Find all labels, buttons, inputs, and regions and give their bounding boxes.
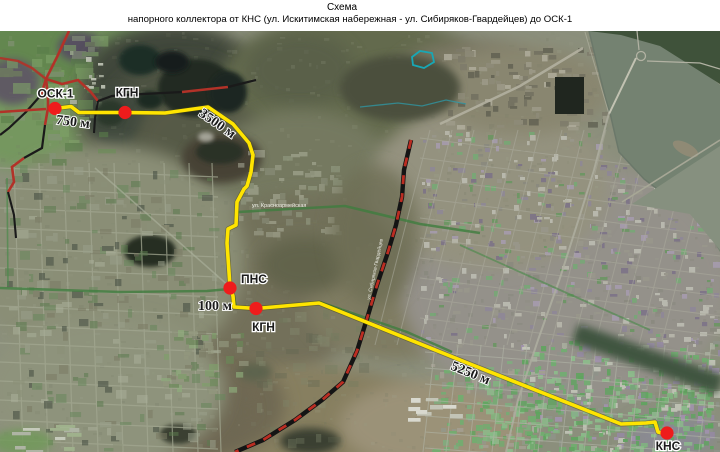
svg-text:КГН: КГН bbox=[252, 320, 275, 334]
svg-text:КНС: КНС bbox=[656, 439, 681, 452]
svg-text:100 м: 100 м bbox=[198, 299, 233, 314]
svg-text:ОСК-1: ОСК-1 bbox=[38, 87, 74, 101]
svg-text:ПНС: ПНС bbox=[241, 272, 267, 286]
svg-text:ул. Красноармейская: ул. Красноармейская bbox=[252, 202, 306, 209]
svg-text:КГН: КГН bbox=[116, 86, 139, 100]
